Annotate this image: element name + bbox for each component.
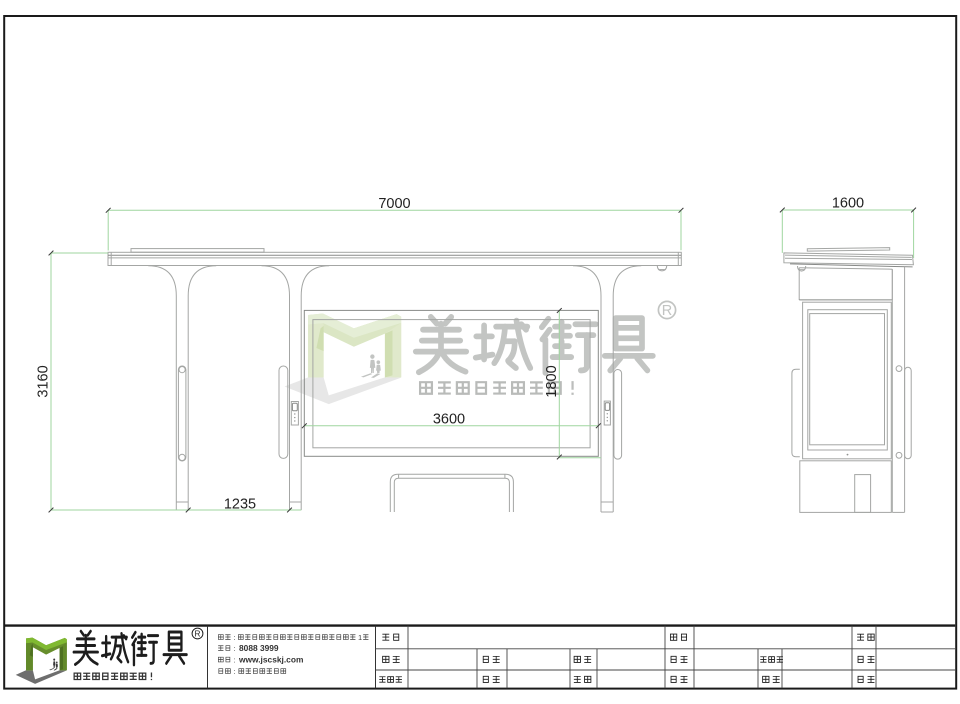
svg-text::: : bbox=[234, 633, 236, 642]
svg-text:R: R bbox=[195, 630, 201, 639]
svg-text:www.jscskj.com: www.jscskj.com bbox=[238, 655, 303, 665]
svg-text:8088 3999: 8088 3999 bbox=[239, 643, 279, 653]
svg-text:3600: 3600 bbox=[433, 411, 465, 427]
svg-text:1800: 1800 bbox=[544, 365, 560, 397]
svg-text:1235: 1235 bbox=[224, 496, 256, 512]
svg-text:1600: 1600 bbox=[832, 196, 864, 212]
svg-text:3160: 3160 bbox=[36, 365, 52, 397]
svg-text::: : bbox=[234, 667, 236, 676]
svg-text:1: 1 bbox=[358, 633, 362, 642]
svg-text::: : bbox=[234, 644, 236, 653]
svg-text:R: R bbox=[662, 303, 672, 319]
svg-text::: : bbox=[234, 655, 236, 664]
svg-text:7000: 7000 bbox=[378, 196, 410, 212]
